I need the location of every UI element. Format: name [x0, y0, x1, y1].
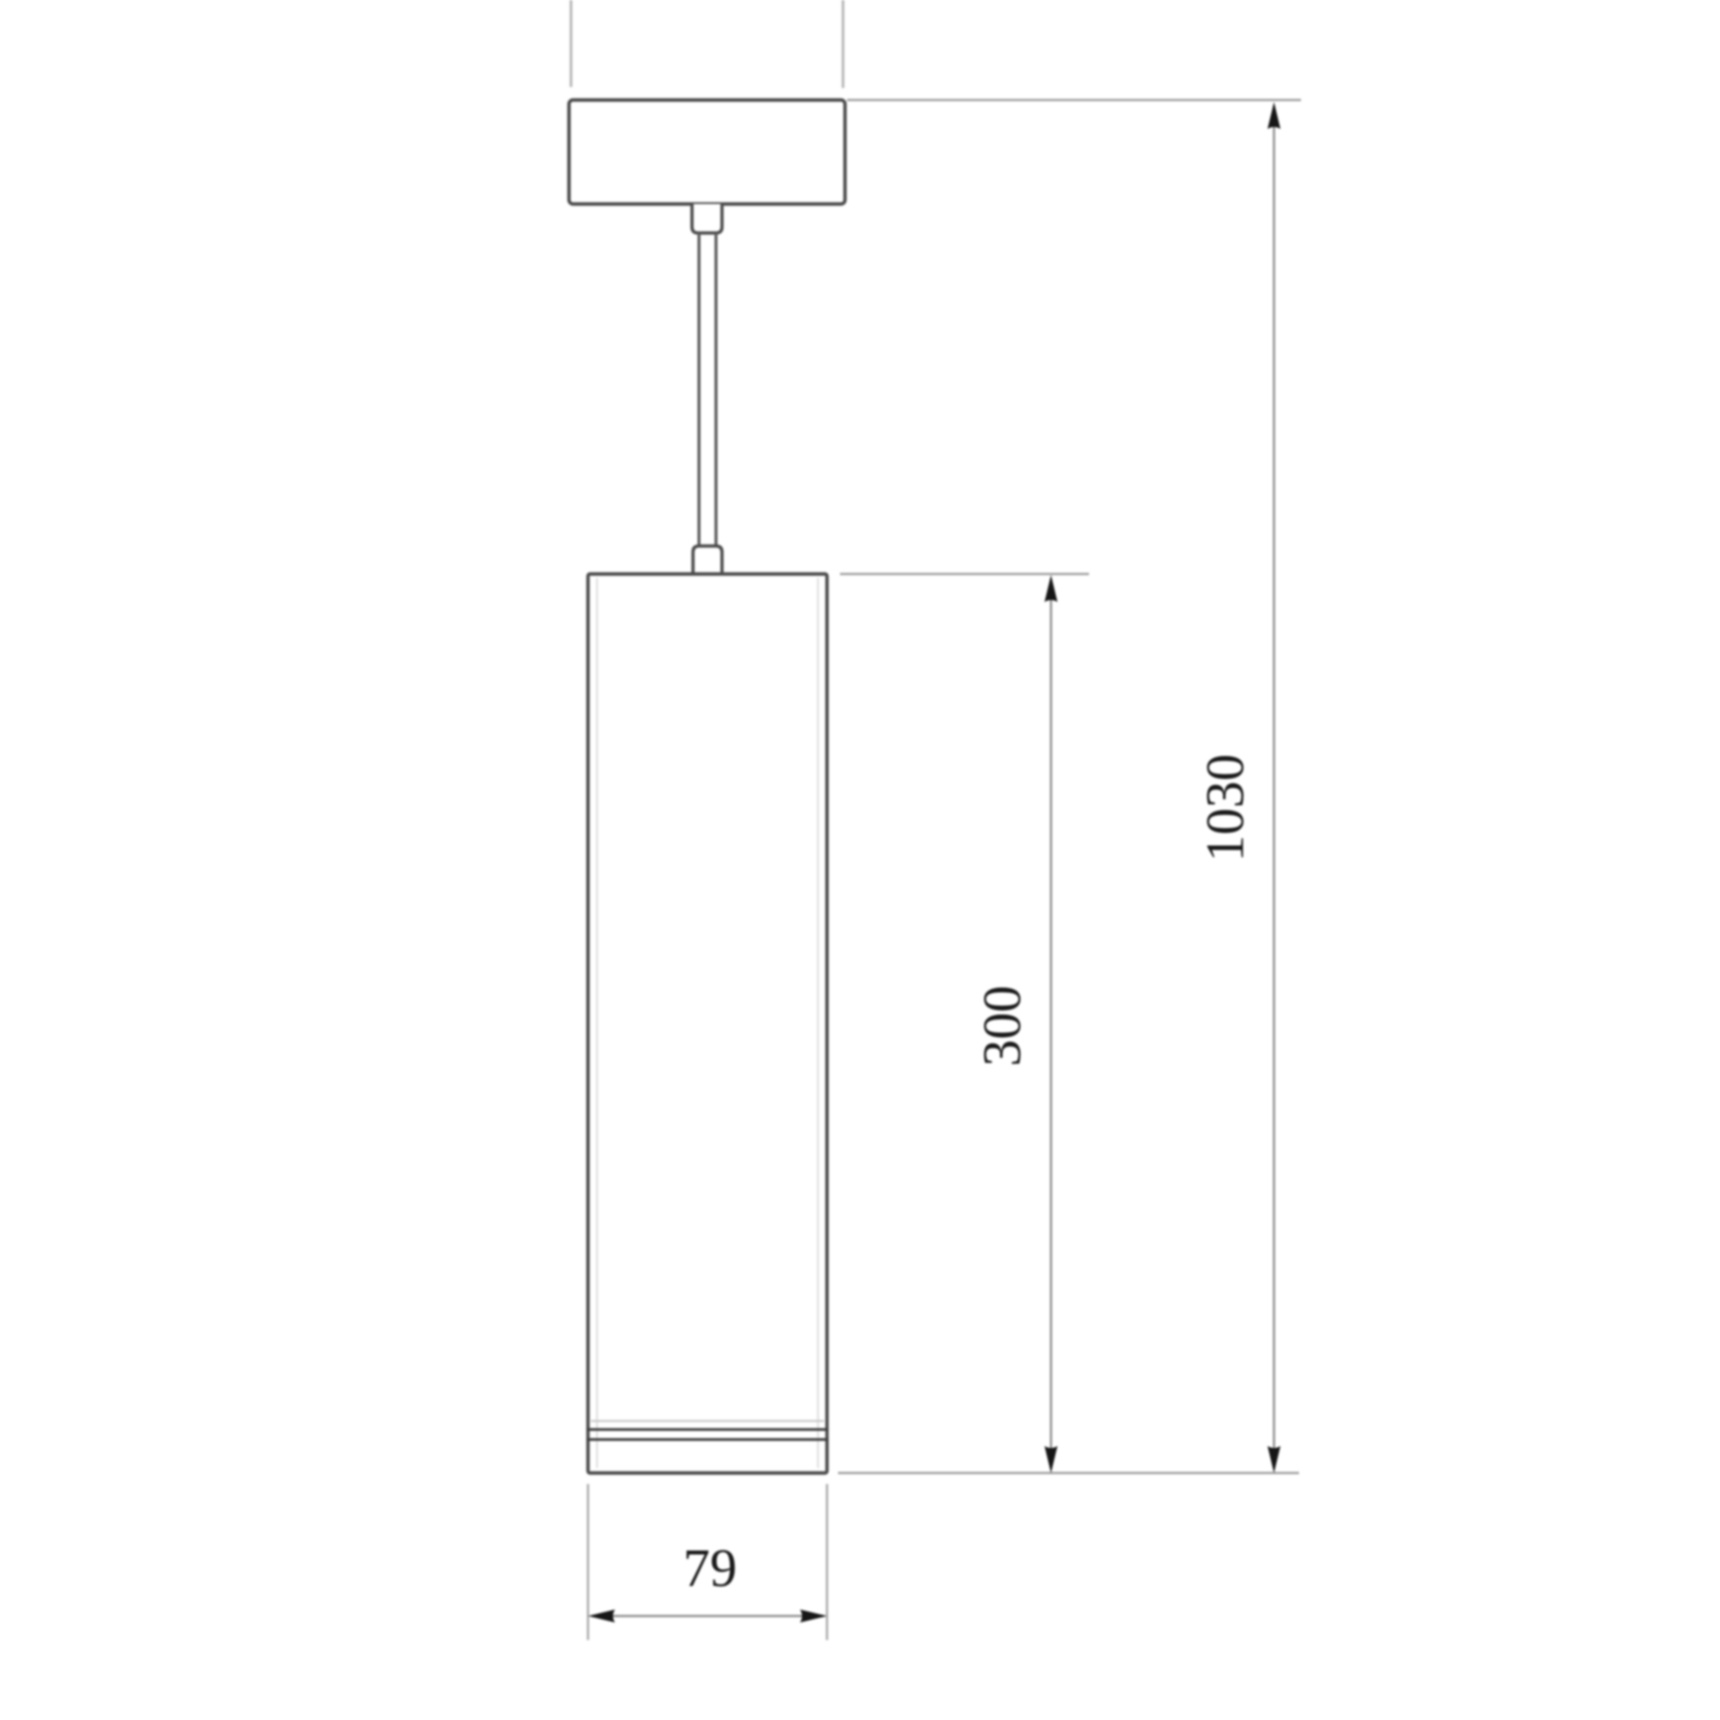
svg-text:300: 300	[972, 986, 1032, 1067]
svg-text:79: 79	[683, 1538, 737, 1598]
svg-text:1030: 1030	[1195, 754, 1255, 862]
